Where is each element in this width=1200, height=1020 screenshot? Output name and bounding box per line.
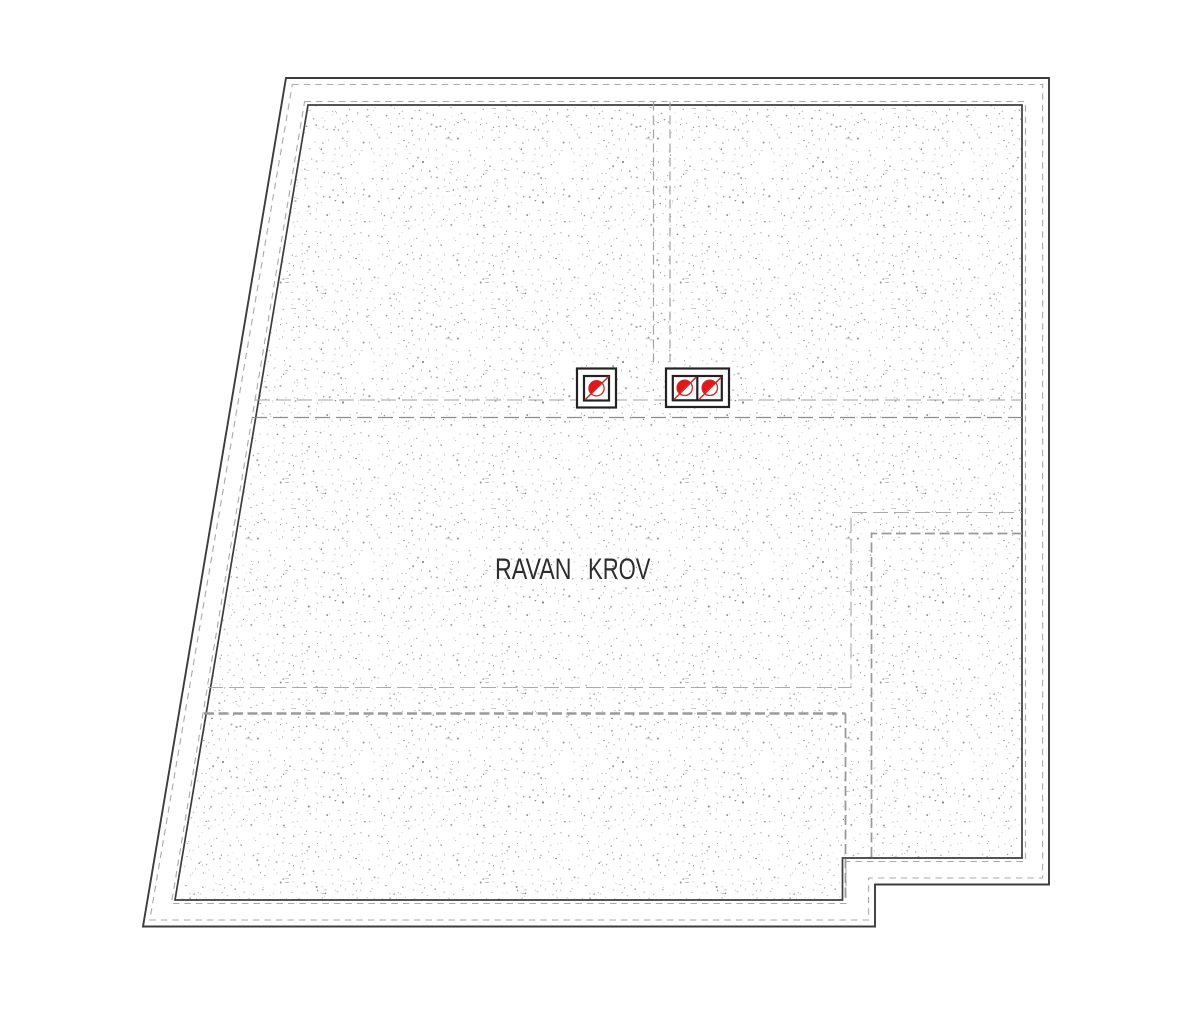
svg-text:KROV: KROV — [588, 553, 651, 586]
svg-text:RAVAN: RAVAN — [495, 553, 572, 586]
